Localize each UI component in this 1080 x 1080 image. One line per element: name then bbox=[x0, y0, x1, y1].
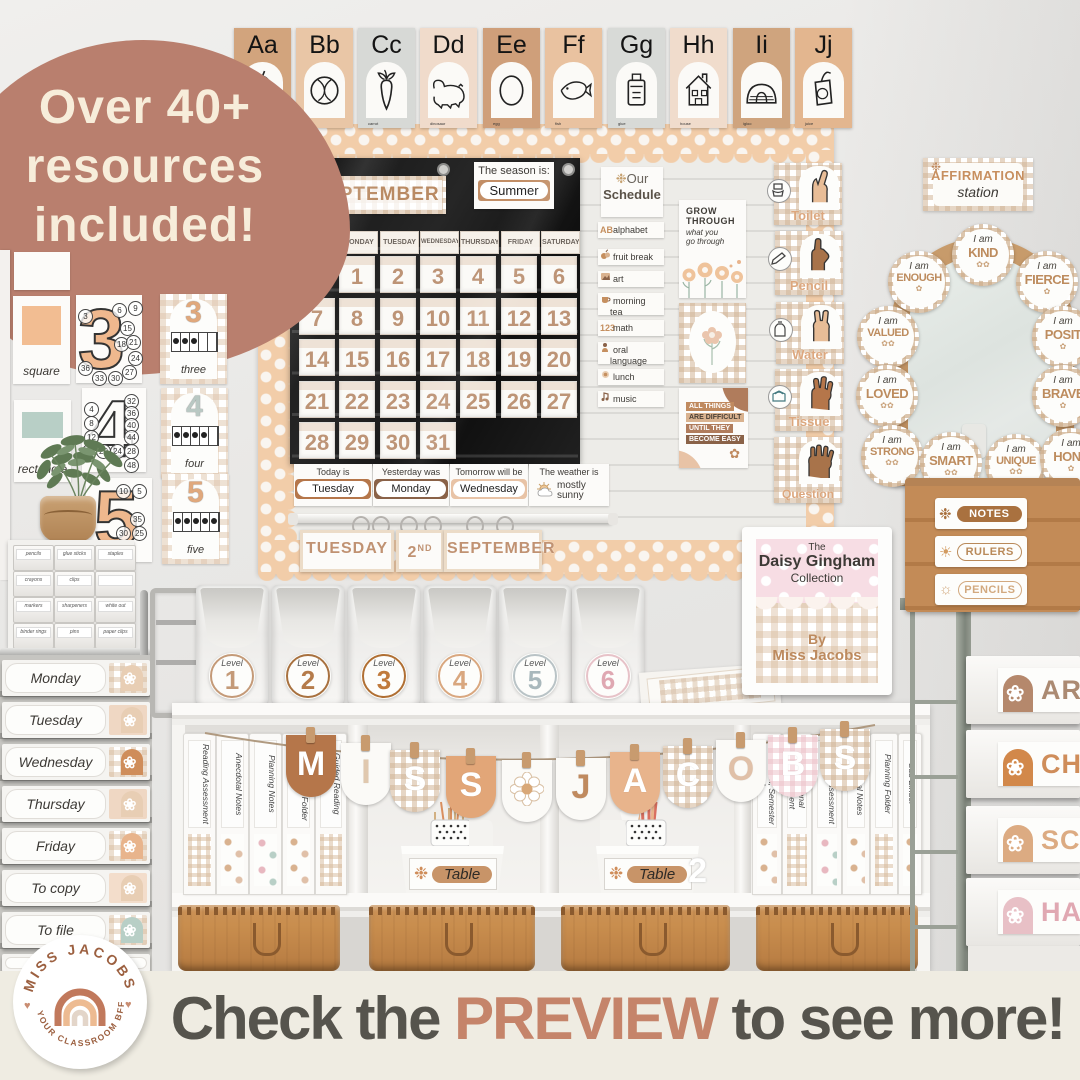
svg-text:♥: ♥ bbox=[24, 1000, 31, 1012]
svg-text:♥: ♥ bbox=[125, 999, 132, 1011]
svg-text:MISS JACOBS: MISS JACOBS bbox=[20, 941, 140, 994]
svg-text:YOUR CLASSROOM BFF: YOUR CLASSROOM BFF bbox=[35, 1000, 126, 1048]
